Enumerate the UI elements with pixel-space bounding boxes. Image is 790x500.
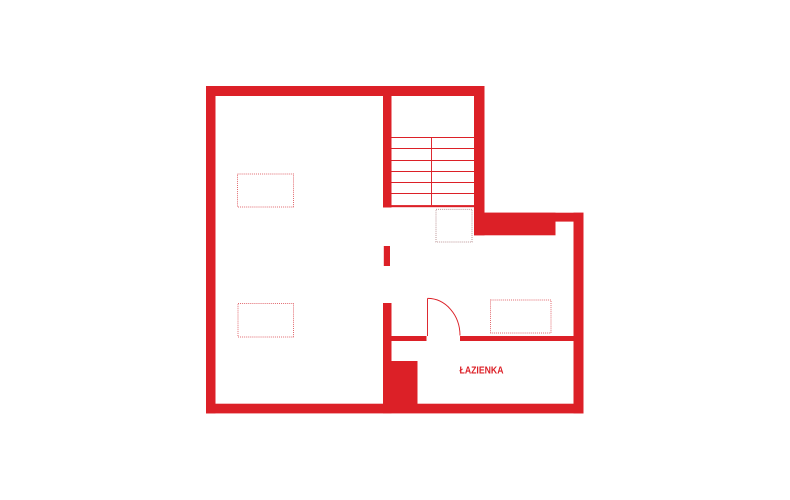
svg-text:ŁAZIENKA: ŁAZIENKA (460, 365, 504, 377)
